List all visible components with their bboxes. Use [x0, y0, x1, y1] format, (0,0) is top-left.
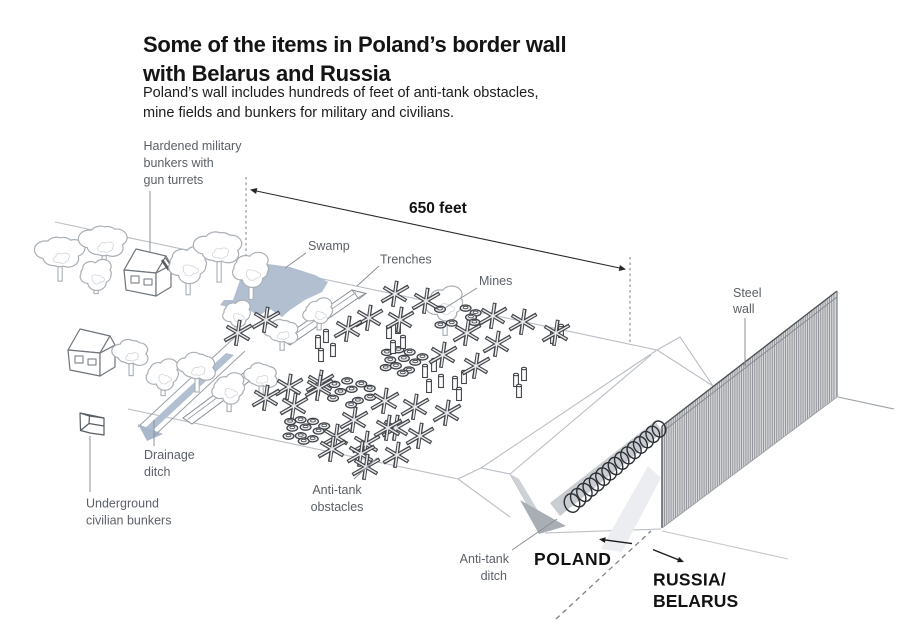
svg-text:ditch: ditch: [481, 569, 507, 583]
svg-text:civilian bunkers: civilian bunkers: [86, 514, 171, 528]
svg-text:bunkers with: bunkers with: [144, 156, 214, 170]
svg-text:Swamp: Swamp: [308, 239, 350, 253]
svg-text:gun turrets: gun turrets: [144, 173, 204, 187]
svg-text:RUSSIA/: RUSSIA/: [653, 570, 726, 590]
svg-text:650 feet: 650 feet: [409, 200, 467, 217]
svg-text:Mines: Mines: [479, 274, 512, 288]
svg-text:Anti-tank: Anti-tank: [312, 483, 362, 497]
svg-text:wall: wall: [732, 302, 755, 316]
svg-text:obstacles: obstacles: [311, 500, 364, 514]
svg-text:Underground: Underground: [86, 497, 159, 511]
svg-text:Drainage: Drainage: [144, 448, 195, 462]
svg-text:ditch: ditch: [144, 465, 170, 479]
svg-text:Anti-tank: Anti-tank: [460, 552, 510, 566]
svg-text:Hardened military: Hardened military: [144, 139, 243, 153]
svg-text:Steel: Steel: [733, 286, 762, 300]
svg-text:Trenches: Trenches: [380, 253, 432, 267]
svg-text:POLAND: POLAND: [534, 549, 612, 569]
svg-text:BELARUS: BELARUS: [653, 591, 738, 611]
